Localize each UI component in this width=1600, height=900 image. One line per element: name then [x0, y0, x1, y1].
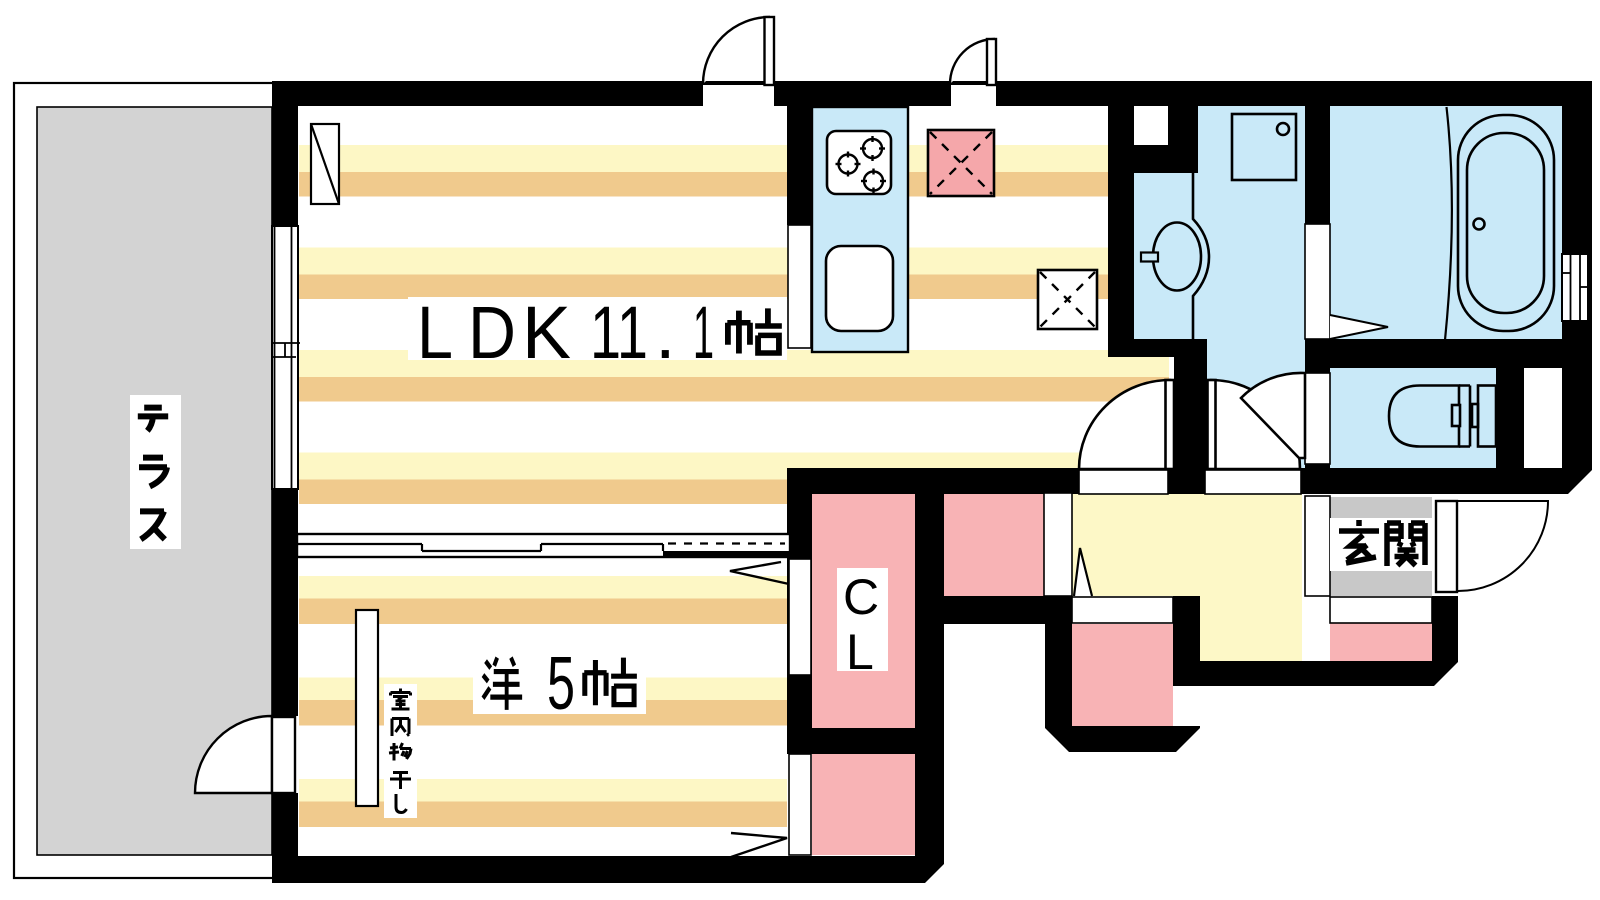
- svg-text:.: .: [655, 291, 676, 374]
- svg-text:L: L: [846, 624, 874, 680]
- svg-text:11: 11: [590, 291, 648, 374]
- svg-text:L: L: [417, 291, 453, 374]
- svg-text:5: 5: [547, 641, 575, 725]
- svg-text:1: 1: [693, 291, 714, 374]
- svg-text:C: C: [843, 569, 879, 625]
- svg-text:D: D: [468, 291, 516, 374]
- svg-text:K: K: [522, 291, 571, 374]
